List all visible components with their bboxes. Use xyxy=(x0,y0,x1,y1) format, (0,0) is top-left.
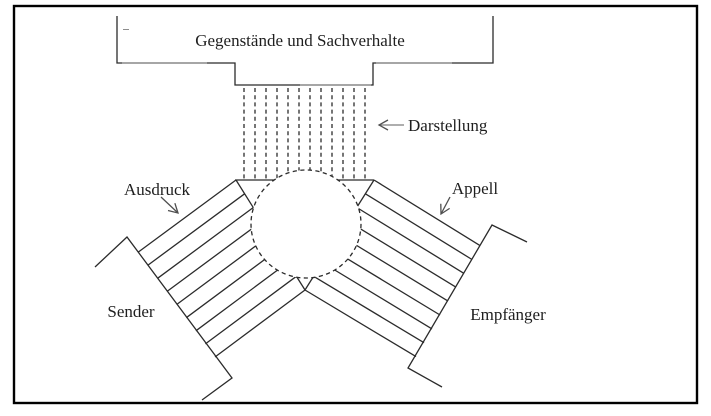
diagram-canvas: Gegenstände und Sachverhalte xyxy=(0,0,711,416)
objects-box-label: Gegenstände und Sachverhalte xyxy=(195,31,405,50)
appell-label: Appell xyxy=(452,179,499,198)
darstellung-label: Darstellung xyxy=(408,116,488,135)
ausdruck-label: Ausdruck xyxy=(124,180,191,199)
empfaenger-label: Empfänger xyxy=(470,305,546,324)
sender-label: Sender xyxy=(107,302,155,321)
sign-circle xyxy=(251,170,361,278)
organon-model-diagram: Gegenstände und Sachverhalte xyxy=(0,0,711,416)
